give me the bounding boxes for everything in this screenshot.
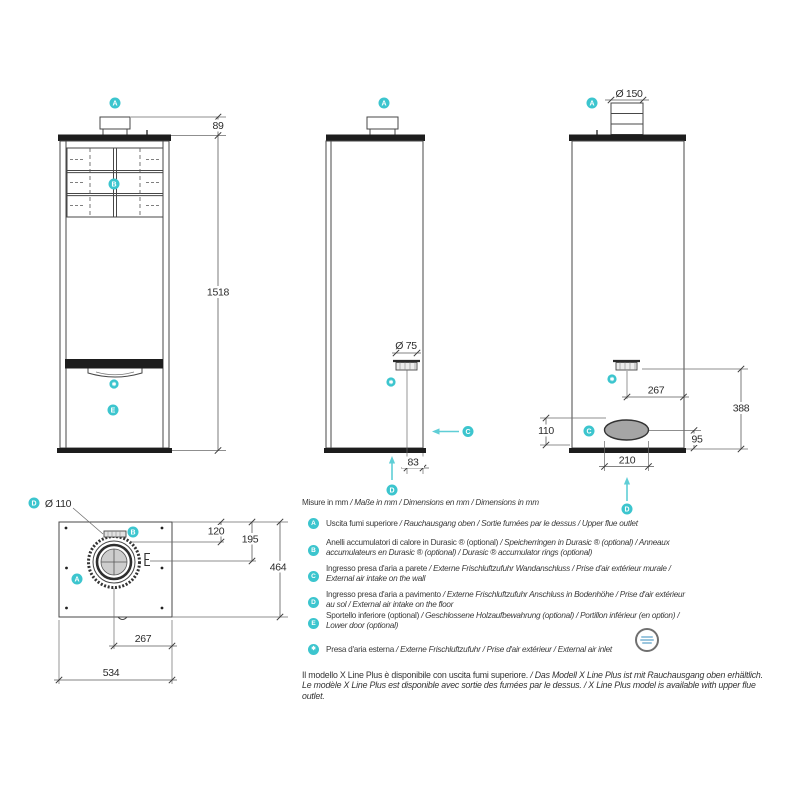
legend-item-b-text: Anelli accumulatori di calore in Durasic… (326, 538, 694, 558)
dim-top-inlet-from-side: 267 (135, 633, 152, 645)
dim-top-width: 534 (103, 667, 120, 679)
marker-c-back: C (584, 426, 595, 437)
back-base (569, 448, 686, 453)
dim-back-recess-left: 110 (538, 425, 554, 437)
marker-a-legend-badge: A (308, 518, 319, 529)
units-note: Misure in mm / Maße in mm / Dimensions e… (302, 498, 539, 508)
dim-side-air-offset: 83 (407, 457, 419, 469)
svg-text:D: D (31, 500, 36, 507)
marker-air-inlet-front: ✱ (109, 379, 118, 388)
legend-item-b: B Anelli accumulatori di calore in Duras… (302, 538, 694, 558)
legend-item-a-text: Uscita fumi superiore / Rauchausgang obe… (326, 519, 694, 529)
side-base (324, 448, 426, 453)
back-top-plate (569, 135, 686, 142)
back-air-inlet (613, 361, 640, 370)
legend-item-d-text: Ingresso presa d'aria a pavimento / Exte… (326, 590, 694, 610)
d-pointer-arrow (389, 456, 395, 464)
back-view: Ø 150 267 388 110 95 (532, 88, 755, 515)
marker-d-side: D (387, 485, 398, 496)
legend-item-air-inlet-text: Presa d'aria esterna / Externe Frischluf… (326, 645, 626, 655)
marker-d-legend-badge: D (308, 597, 319, 608)
side-top-plate (326, 135, 425, 142)
marker-air-inlet-side: ✱ (386, 377, 395, 386)
dim-front-flue-height: 89 (212, 120, 224, 132)
svg-text:✱: ✱ (389, 379, 394, 386)
marker-b-legend-badge: B (308, 545, 319, 556)
marker-a-top: A (72, 574, 83, 585)
back-flue-pipe (611, 103, 643, 135)
front-base (57, 448, 172, 453)
svg-text:D: D (624, 506, 629, 513)
dimension-drawing-page: 89 1518 A B ✱ E (0, 0, 800, 800)
legend-item-c: C Ingresso presa d'aria a parete / Exter… (302, 564, 694, 584)
legend-item-e-text: Sportello inferiore (optional) / Geschlo… (326, 611, 694, 631)
front-handle (88, 369, 142, 378)
legend-item-c-text: Ingresso presa d'aria a parete / Externe… (326, 564, 694, 584)
certification-stamp-icon (635, 628, 659, 652)
svg-text:A: A (112, 100, 117, 107)
marker-d-back: D (622, 504, 633, 515)
front-top-plate (58, 135, 171, 142)
dim-back-air-from-side: 267 (648, 385, 665, 397)
dim-side-air-diameter: Ø 75 (395, 340, 417, 352)
marker-air-inlet-legend-badge: ✱ (308, 644, 319, 655)
front-dimensions: 89 1518 (131, 114, 233, 454)
svg-text:B: B (111, 181, 116, 188)
side-flue-pipe (367, 117, 398, 129)
dim-back-flue-diameter: Ø 150 (615, 88, 643, 100)
svg-text:E: E (111, 407, 116, 414)
marker-c-side: C (463, 426, 474, 437)
svg-text:✱: ✱ (610, 376, 615, 383)
front-hearth-band (65, 359, 163, 369)
side-body (326, 141, 423, 448)
front-view: 89 1518 A B ✱ E (57, 98, 233, 454)
dim-top-air-diameter: Ø 110 (45, 498, 72, 510)
top-dimensions: Ø 110 120 195 464 267 (45, 498, 290, 684)
side-air-inlet (393, 361, 420, 370)
dim-top-flue-center: 195 (242, 534, 259, 546)
top-flue-collar (89, 531, 151, 588)
svg-text:B: B (130, 529, 135, 536)
marker-c-legend-badge: C (308, 571, 319, 582)
marker-e-front: E (108, 405, 119, 416)
top-view: Ø 110 120 195 464 267 (29, 498, 291, 685)
footer-note: Il modello X Line Plus è disponibile con… (302, 670, 780, 701)
front-flue-pipe (100, 117, 130, 129)
back-body (572, 141, 684, 448)
svg-text:D: D (389, 487, 394, 494)
d-pointer-arrow-back (624, 477, 630, 485)
dim-top-depth: 464 (270, 562, 287, 574)
marker-a-back: A (587, 98, 598, 109)
back-recess-oval (605, 420, 649, 440)
dim-back-recess-width: 210 (619, 455, 636, 467)
svg-text:✱: ✱ (112, 381, 117, 388)
marker-e-legend-badge: E (308, 618, 319, 629)
marker-b-front: B (109, 179, 120, 190)
side-view: Ø 75 83 A ✱ C D (324, 98, 474, 496)
marker-a-front: A (110, 98, 121, 109)
svg-text:A: A (74, 576, 79, 583)
back-dimensions: Ø 150 267 388 110 95 (532, 88, 755, 471)
svg-text:C: C (465, 429, 470, 436)
marker-air-inlet-back: ✱ (607, 374, 616, 383)
svg-text:A: A (381, 100, 386, 107)
marker-b-top: B (128, 527, 139, 538)
svg-text:C: C (586, 428, 591, 435)
c-pointer-arrow (432, 428, 440, 434)
legend-item-d: D Ingresso presa d'aria a pavimento / Ex… (302, 590, 694, 610)
legend-item-e: E Sportello inferiore (optional) / Gesch… (302, 611, 694, 631)
svg-text:A: A (589, 100, 594, 107)
marker-d-top: D (29, 498, 40, 509)
dim-back-recess-right: 95 (691, 434, 703, 446)
legend-item-air-inlet: ✱ Presa d'aria esterna / Externe Frischl… (302, 645, 626, 655)
dim-back-air-height: 388 (733, 403, 750, 415)
marker-a-side: A (379, 98, 390, 109)
legend-item-a: A Uscita fumi superiore / Rauchausgang o… (302, 519, 694, 529)
dim-top-flue-from-back: 120 (208, 526, 225, 538)
dim-front-total-height: 1518 (207, 287, 230, 299)
